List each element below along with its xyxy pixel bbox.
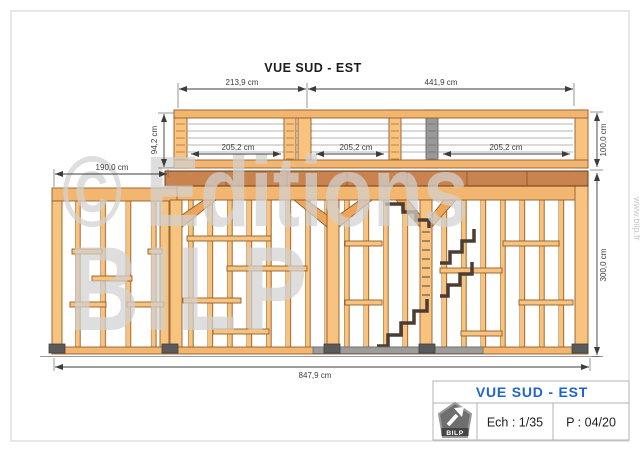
dim-top-right: 441,9 cm	[425, 78, 458, 87]
title-block-scale: Ech : 1/35	[487, 416, 543, 430]
drawing-page: © Editions BILP www.bilp.fr 213,9 cm 441…	[0, 0, 640, 453]
dim-wall-height: 300,0 cm	[599, 248, 608, 281]
dim-guardrail-height: 100,0 cm	[599, 123, 608, 156]
dim-bay2: 205,2 cm	[340, 143, 373, 152]
dim-top-left: 213,9 cm	[226, 78, 259, 87]
title-block-view-title: VUE SUD - EST	[476, 384, 588, 400]
website-watermark: www.bilp.fr	[632, 196, 640, 241]
bilp-logo-text: BILP	[446, 430, 463, 437]
post	[575, 186, 588, 347]
title-block: VUE SUD - EST Ech : 1/35 P : 04/20 BILP	[433, 381, 629, 440]
dim-total-width: 847,9 cm	[299, 371, 332, 380]
drawing-title: VUE SUD - EST	[264, 61, 362, 75]
balustrade-post	[575, 110, 588, 168]
dim-balustrade-height: 94,2 cm	[150, 125, 159, 154]
dim-bay3: 205,2 cm	[490, 143, 523, 152]
construction-drawing: © Editions BILP www.bilp.fr 213,9 cm 441…	[0, 0, 640, 453]
dim-bay1: 205,2 cm	[222, 143, 255, 152]
dim-left-wall-width: 190,0 cm	[96, 163, 129, 172]
title-block-page: P : 04/20	[566, 416, 616, 430]
watermark-line2: BILP	[69, 223, 313, 356]
balustrade-top-rail	[174, 110, 588, 118]
